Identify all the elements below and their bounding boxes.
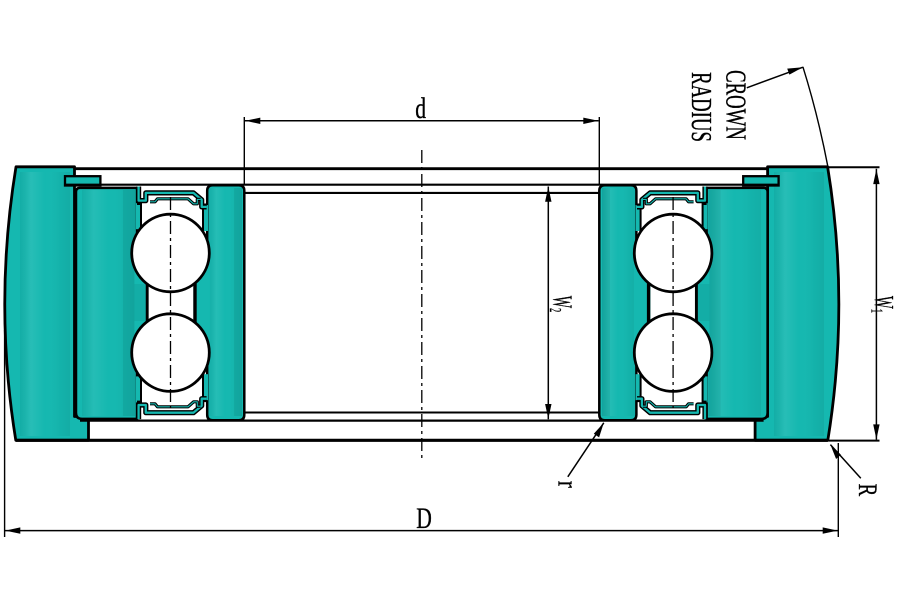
svg-text:r: r (552, 481, 584, 488)
svg-text:R: R (853, 484, 882, 497)
svg-text:CROWN: CROWN (720, 70, 751, 140)
svg-text:d: d (415, 92, 426, 125)
svg-text:RADIUS: RADIUS (685, 72, 716, 142)
svg-text:D: D (416, 502, 432, 535)
